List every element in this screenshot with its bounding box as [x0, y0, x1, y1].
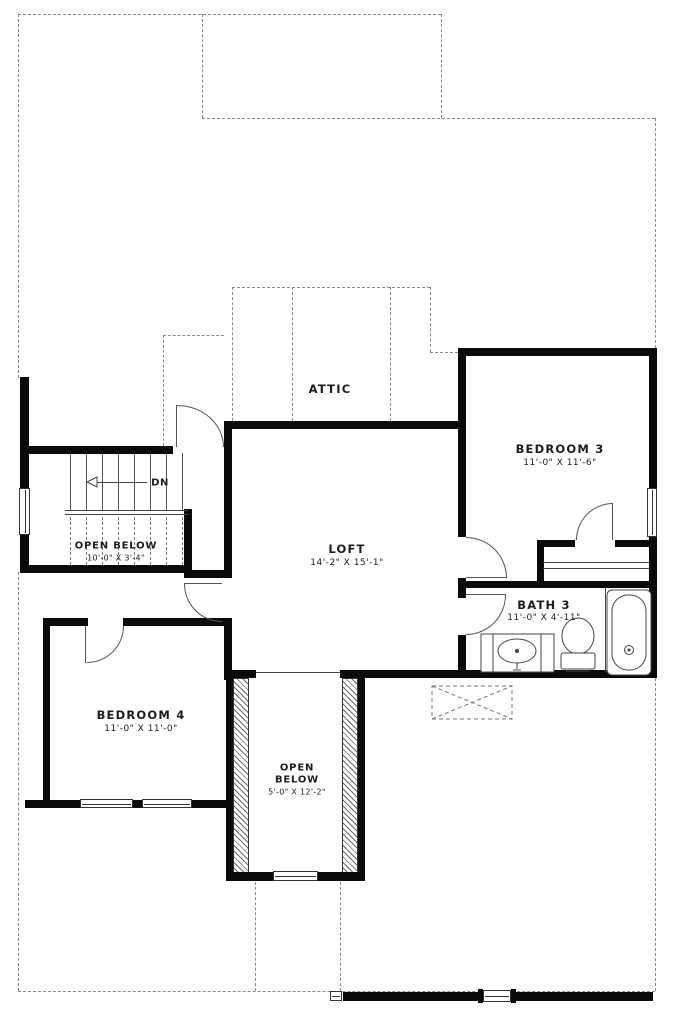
loft-dims: 14'-2" X 15'-1"	[310, 558, 383, 568]
loft-label: LOFT	[328, 542, 365, 556]
bath3-toilet	[561, 618, 595, 671]
stair-open-below-dims: 10'-0" X 3'-4"	[87, 554, 145, 563]
bath3-bathtub	[607, 590, 651, 675]
stair-open-below-label: OPEN BELOW	[75, 541, 158, 552]
floor-plan: ATTIC BEDROOM 3 11'-0" X 11'-6" LOFT 14'…	[0, 0, 677, 1024]
bath3-label: BATH 3	[517, 598, 570, 612]
shaft-open-below-label-2: BELOW	[275, 775, 319, 786]
bedroom4-label: BEDROOM 4	[97, 708, 186, 722]
bedroom4-dims: 11'-0" X 11'-0"	[104, 724, 177, 734]
dn-arrowhead-icon	[87, 477, 97, 487]
dn-label: DN	[151, 478, 169, 489]
shaft-open-below-label-1: OPEN	[280, 763, 314, 774]
bedroom3-dims: 11'-0" X 11'-6"	[523, 458, 596, 468]
shaft-open-below-dims: 5'-0" X 12'-2"	[268, 788, 326, 797]
bath3-vanity-sink	[481, 634, 554, 672]
bedroom3-label: BEDROOM 3	[516, 442, 605, 456]
fixtures-layer	[0, 0, 677, 1024]
attic-label: ATTIC	[309, 382, 352, 396]
attic-access-hatch	[432, 686, 512, 719]
bath3-dims: 11'-0" X 4'-11"	[507, 613, 580, 623]
